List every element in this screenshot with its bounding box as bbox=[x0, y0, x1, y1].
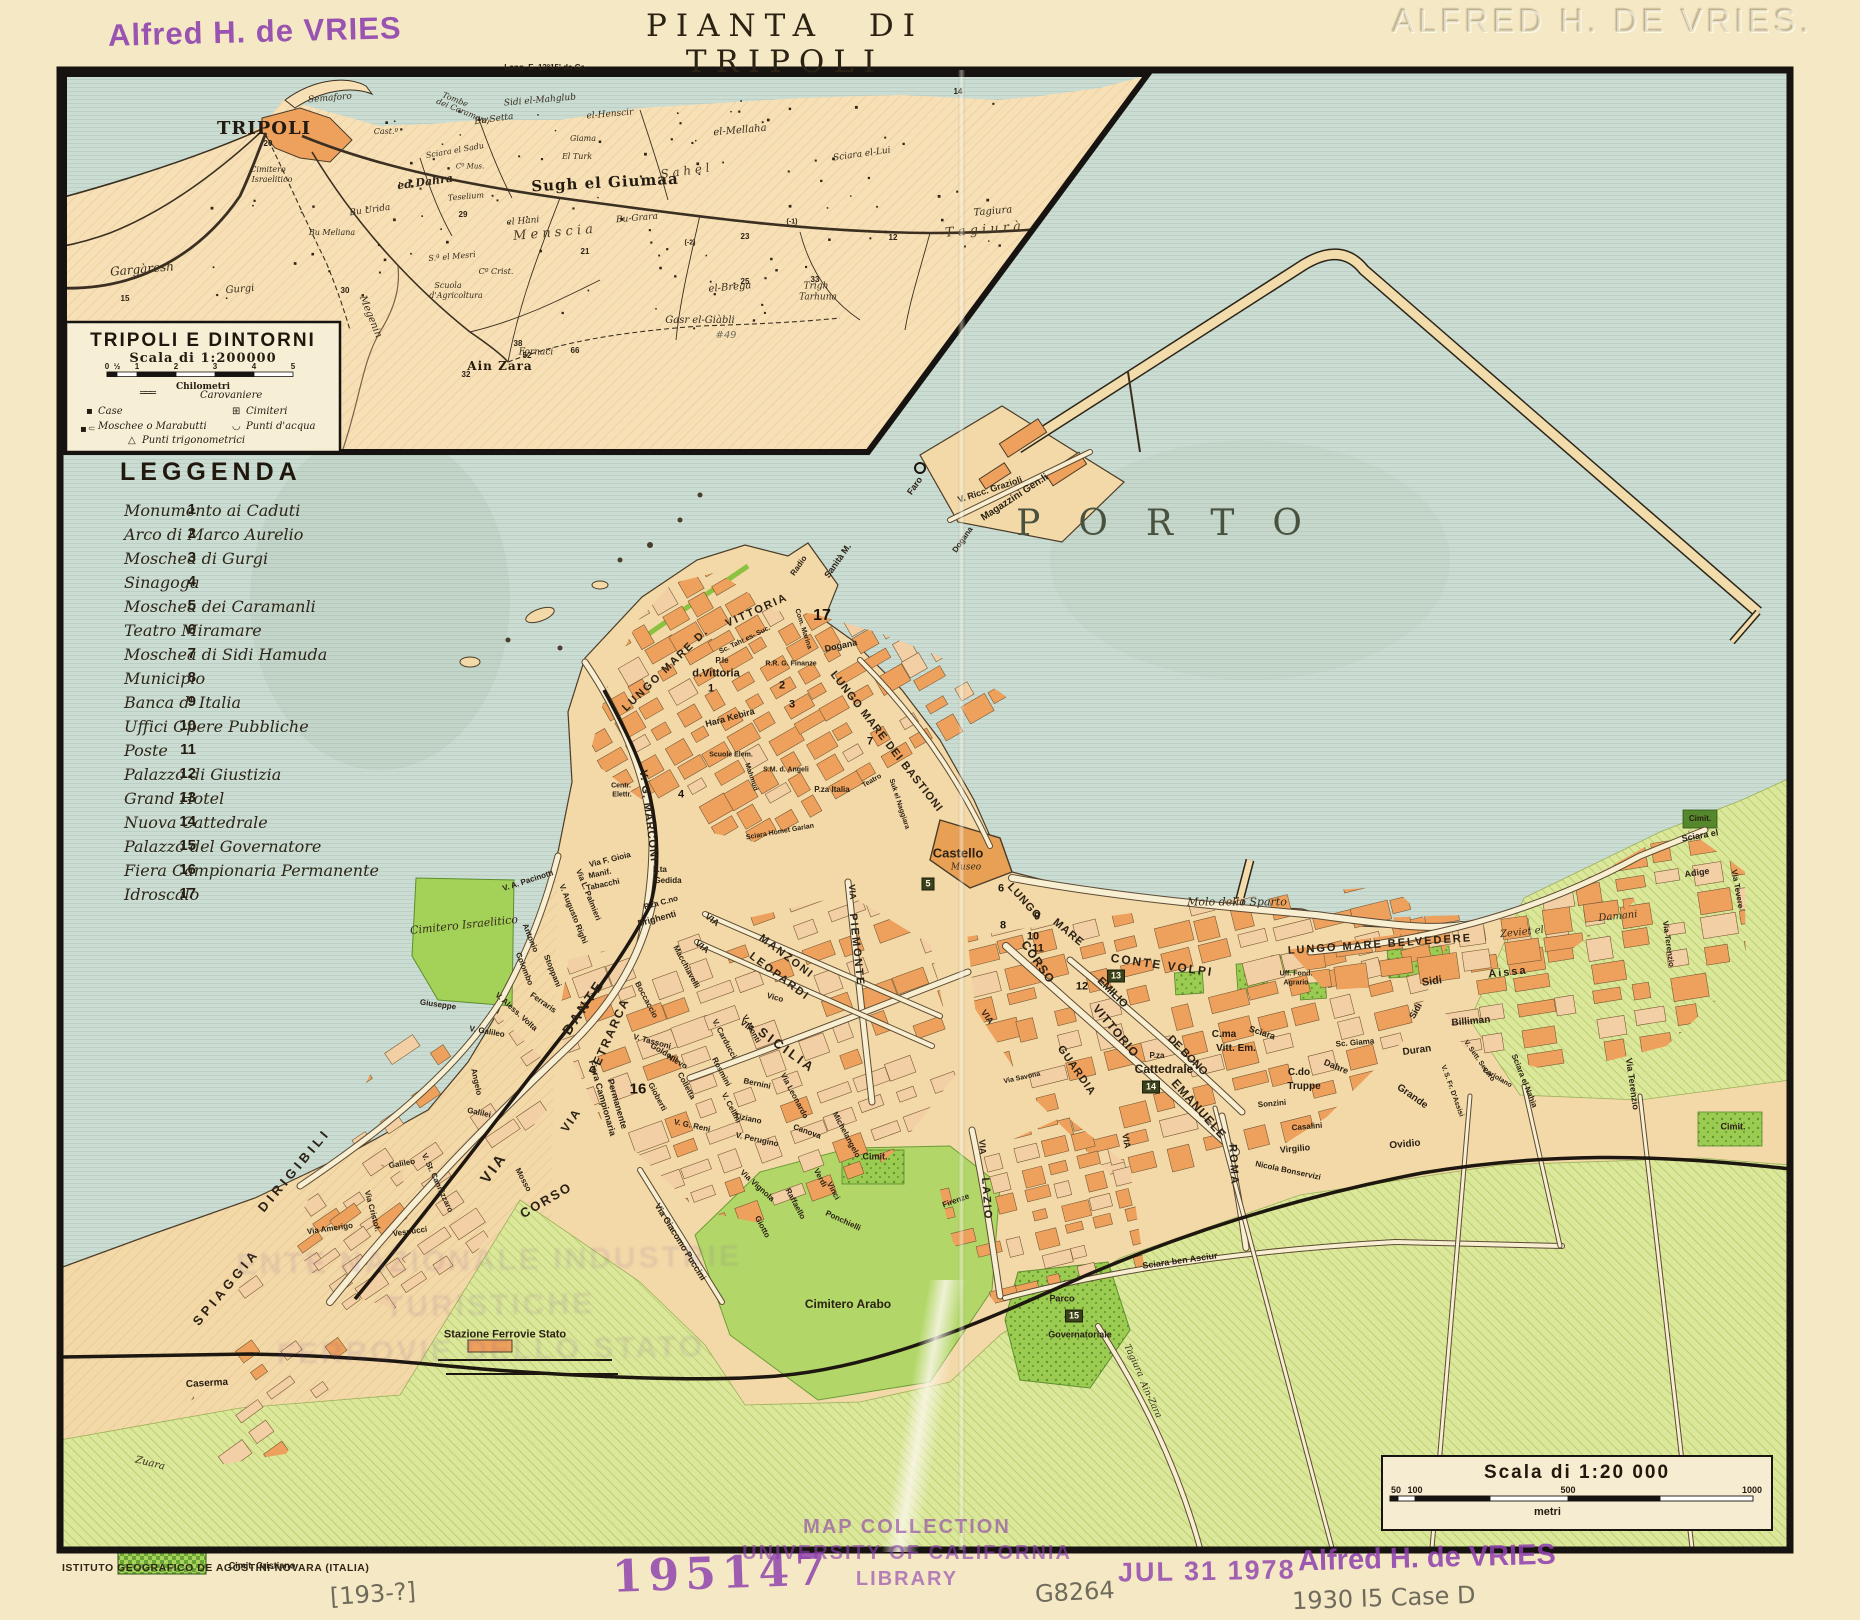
legend-item: 16Fiera Campionaria Permanente bbox=[88, 861, 418, 885]
map-label: Molo dello Sparto bbox=[1187, 897, 1287, 908]
map-label: Truppe bbox=[1287, 1082, 1320, 1092]
inset-legend-acqua: Punti d'acqua bbox=[246, 421, 316, 432]
map-label: 38 bbox=[514, 340, 523, 348]
map-label: Cº Mus. bbox=[456, 164, 484, 171]
map-label: ROMA bbox=[1226, 1144, 1239, 1186]
house-square-icon: ▪ bbox=[86, 406, 93, 417]
map-label: Cimit. bbox=[862, 1153, 887, 1162]
mosque-mark-icon: ▪⸦ bbox=[80, 421, 97, 435]
map-label: Cimitero Arabo bbox=[805, 1298, 891, 1310]
landmark-number-5: 5 bbox=[921, 878, 934, 891]
legend-item-label: Municipio bbox=[124, 669, 205, 688]
map-label: d'Agricoltura bbox=[429, 292, 482, 300]
legend-item: 4Sinagoga bbox=[88, 573, 418, 597]
map-label: P.za bbox=[1150, 1052, 1165, 1060]
paper-crease bbox=[958, 70, 965, 1550]
legend-title: LEGGENDA bbox=[120, 458, 418, 487]
map-label: S.M. d. Angeli bbox=[763, 767, 809, 774]
landmark-number-4: 4 bbox=[678, 790, 684, 801]
map-label: Parco bbox=[1049, 1295, 1074, 1304]
legend-item-label: Palazzo di Giustizia bbox=[124, 765, 281, 784]
inset-scale-tick: 0 bbox=[105, 362, 109, 371]
inset-scale-tick: 3 bbox=[213, 362, 217, 371]
map-label: Scuola bbox=[434, 282, 461, 290]
map-label: El Turk bbox=[562, 153, 592, 161]
legend-item: 17Idroscalo bbox=[88, 885, 418, 909]
map-label: (-1) bbox=[787, 219, 798, 226]
inset-legend-case: Case bbox=[98, 406, 123, 417]
map-label: 66 bbox=[571, 347, 580, 355]
map-label: C.do bbox=[1288, 1068, 1310, 1078]
map-label: Cimit. bbox=[1720, 1123, 1745, 1132]
map-label: TRIPOLI bbox=[217, 120, 311, 138]
map-label: Bu Meliana bbox=[309, 229, 355, 237]
publisher-imprint: ISTITUTO GEOGRAFICO DE AGOSTINI-NOVARA (… bbox=[62, 1562, 369, 1574]
landmark-number-6: 6 bbox=[998, 884, 1004, 895]
legend-item-label: Sinagoga bbox=[124, 573, 200, 592]
legend-item-label: Idroscalo bbox=[124, 885, 199, 904]
map-label: Tarhuna bbox=[799, 294, 837, 303]
inset-scale-tick: ½ bbox=[114, 362, 121, 371]
scale-box: Scala di 1:20 000 metri 501005001000 bbox=[1382, 1456, 1772, 1530]
legend-item: 2Arco di Marco Aurelio bbox=[88, 525, 418, 549]
landmark-number-10: 10 bbox=[1027, 932, 1039, 943]
map-label: Gasr el-Giàbli bbox=[665, 316, 734, 326]
map-label: Scuole Elem. bbox=[709, 752, 753, 759]
legend-item: 15Palazzo del Governatore bbox=[88, 837, 418, 861]
landmark-number-15: 15 bbox=[1065, 1310, 1083, 1323]
map-sheet: PIANTA DI TRIPOLI Alfred H. de VRIES ALF… bbox=[0, 0, 1860, 1620]
owner-stamp-bottom: Alfred H. de VRIES bbox=[1298, 1539, 1557, 1579]
map-label: Uff. Fond. bbox=[1280, 971, 1313, 978]
water-point-icon: ◡ bbox=[232, 421, 241, 432]
legend-item: 1Monumento ai Caduti bbox=[88, 501, 418, 525]
inset-title: TRIPOLI E DINTORNI bbox=[66, 330, 340, 352]
legend-item-label: Moschea di Sidi Hamuda bbox=[124, 645, 327, 664]
map-label: Governatoriale bbox=[1048, 1331, 1112, 1340]
scale-unit: metri bbox=[1534, 1506, 1561, 1518]
legend-item-label: Fiera Campionaria Permanente bbox=[124, 861, 379, 880]
map-label: PORTO bbox=[1016, 506, 1340, 542]
map-label: R.R. G. Finanze bbox=[765, 661, 816, 668]
pencil-date-note: [193-?] bbox=[329, 1577, 417, 1611]
inset-legend-cimiteri: Cimiteri bbox=[246, 406, 287, 417]
legend-item: 8Municipio bbox=[88, 669, 418, 693]
legend-item-label: Poste bbox=[124, 741, 168, 760]
map-label: Giama bbox=[570, 135, 596, 143]
map-label: P.ta bbox=[653, 866, 667, 874]
scale-tick: 1000 bbox=[1742, 1485, 1762, 1495]
triangle-icon: △ bbox=[128, 435, 136, 446]
legend-panel: LEGGENDA 1Monumento ai Caduti2Arco di Ma… bbox=[88, 458, 418, 909]
map-label: 32 bbox=[462, 371, 471, 379]
map-label: C.ma bbox=[1212, 1030, 1236, 1040]
library-stamp: MAP COLLECTION UNIVERSITY OF CALIFORNIA … bbox=[742, 1514, 1072, 1592]
map-label: P.za Italia bbox=[814, 786, 849, 794]
legend-item-label: Palazzo del Governatore bbox=[124, 837, 321, 856]
map-label: Centr. bbox=[611, 783, 631, 790]
legend-item-label: Grand Hotel bbox=[124, 789, 224, 808]
landmark-number-14: 14 bbox=[1142, 1081, 1160, 1094]
scale-tick: 100 bbox=[1407, 1485, 1422, 1495]
landmark-number-13: 13 bbox=[1107, 970, 1125, 983]
scale-tick: 50 bbox=[1391, 1485, 1401, 1495]
legend-item-label: Moschea dei Caramanli bbox=[124, 597, 316, 616]
map-label: Gedida bbox=[654, 877, 681, 885]
map-label: Long. E. 13°15' da Gr. bbox=[504, 64, 586, 72]
landmark-number-12: 12 bbox=[1076, 982, 1088, 993]
map-label: Agrario bbox=[1284, 980, 1309, 987]
map-label: 20 bbox=[264, 140, 273, 148]
map-label: Museo bbox=[951, 864, 981, 873]
map-label: 15 bbox=[121, 295, 130, 303]
legend-item-label: Uffici Opere Pubbliche bbox=[124, 717, 309, 736]
legend-item-label: Moschea di Gurgi bbox=[124, 549, 268, 568]
map-label: Cast.º bbox=[374, 128, 399, 136]
legend-item-label: Nuova Cattedrale bbox=[124, 813, 268, 832]
legend-item: 12Palazzo di Giustizia bbox=[88, 765, 418, 789]
legend-item-label: Monumento ai Caduti bbox=[124, 501, 300, 520]
map-label: #49 bbox=[715, 331, 736, 341]
legend-item: 5Moschea dei Caramanli bbox=[88, 597, 418, 621]
map-label: Elettr. bbox=[612, 792, 631, 799]
scale-title: Scala di 1:20 000 bbox=[1382, 1462, 1772, 1484]
inset-scale-tick: 1 bbox=[135, 362, 139, 371]
map-label: (-2) bbox=[685, 240, 696, 247]
landmark-number-11: 11 bbox=[1032, 944, 1044, 955]
legend-item: 13Grand Hotel bbox=[88, 789, 418, 813]
map-label: Cº Crist. bbox=[479, 268, 514, 276]
map-label: Cimitero bbox=[250, 166, 285, 174]
map-label: 52 bbox=[523, 352, 532, 360]
legend-item: 6Teatro Miramare bbox=[88, 621, 418, 645]
map-label: 21 bbox=[581, 248, 590, 256]
map-label: Ain Zara bbox=[467, 360, 532, 372]
landmark-number-8: 8 bbox=[1000, 921, 1006, 932]
map-label: VIA bbox=[847, 884, 858, 900]
legend-item: 7Moschea di Sidi Hamuda bbox=[88, 645, 418, 669]
map-label: Cimit. bbox=[1689, 815, 1711, 823]
inset-legend-carovaniere: Carovaniere bbox=[200, 390, 262, 401]
legend-item: 9Banca d' Italia bbox=[88, 693, 418, 717]
landmark-number-7: 7 bbox=[867, 737, 873, 748]
landmark-number-17: 17 bbox=[813, 608, 831, 624]
map-label: Cattedrale bbox=[1135, 1063, 1194, 1075]
road-lines-icon: ═══ bbox=[140, 388, 155, 399]
legend-item-label: Teatro Miramare bbox=[124, 621, 262, 640]
inset-scale-tick: 2 bbox=[174, 362, 178, 371]
verso-showthrough-stamp: ENTE NAZIONALE INDUSTRIE TURISTICHE FERR… bbox=[229, 1233, 751, 1377]
legend-item: 10Uffici Opere Pubbliche bbox=[88, 717, 418, 741]
map-label: VIA bbox=[1120, 1133, 1131, 1149]
legend-item-label: Banca d' Italia bbox=[124, 693, 241, 712]
landmark-number-2: 2 bbox=[779, 681, 785, 692]
scale-tick: 500 bbox=[1560, 1485, 1575, 1495]
map-label: d.Vittoria bbox=[692, 669, 739, 680]
owner-stamp-embossed: ALFRED H. DE VRIES. bbox=[1392, 2, 1813, 40]
legend-item: 3Moschea di Gurgi bbox=[88, 549, 418, 573]
legend-item-label: Arco di Marco Aurelio bbox=[124, 525, 303, 544]
legend-item-number: 11 bbox=[166, 741, 196, 758]
inset-scale-tick: 4 bbox=[252, 362, 256, 371]
legend-items: 1Monumento ai Caduti2Arco di Marco Aurel… bbox=[88, 501, 418, 909]
inset-info-overlay: TRIPOLI E DINTORNI Scala di 1:200000 Chi… bbox=[66, 322, 340, 452]
map-label: 29 bbox=[459, 211, 468, 219]
map-label: Vitt. Em. bbox=[1216, 1044, 1256, 1054]
map-label: VIA bbox=[977, 1139, 987, 1155]
map-label: Israelitico bbox=[252, 176, 293, 184]
landmark-number-1: 1 bbox=[708, 684, 714, 695]
map-label: 12 bbox=[889, 234, 898, 242]
cemetery-grid-icon: ⊞ bbox=[232, 406, 240, 417]
map-label: P.le bbox=[715, 657, 728, 665]
date-stamp: JUL 31 1978 bbox=[1118, 1554, 1296, 1588]
inset-legend-trig: Punti trigonometrici bbox=[142, 435, 245, 446]
map-label: 25 bbox=[741, 278, 750, 286]
map-label: 30 bbox=[341, 287, 350, 295]
pencil-call-number: G8264 bbox=[1034, 1576, 1115, 1608]
legend-item: 11Poste bbox=[88, 741, 418, 765]
map-label: 33 bbox=[811, 276, 820, 284]
landmark-number-9: 9 bbox=[1034, 912, 1040, 923]
owner-stamp-top-left: Alfred H. de VRIES bbox=[108, 10, 402, 54]
landmark-number-16: 16 bbox=[630, 1082, 647, 1097]
legend-item: 14Nuova Cattedrale bbox=[88, 813, 418, 837]
inset-legend-moschee: Moschee o Marabutti bbox=[98, 421, 207, 432]
map-label: 23 bbox=[741, 233, 750, 241]
inset-scale-tick: 5 bbox=[291, 362, 295, 371]
landmark-number-3: 3 bbox=[789, 700, 795, 711]
map-title: PIANTA DI TRIPOLI bbox=[540, 8, 1030, 80]
map-label: LAZIO bbox=[979, 1177, 993, 1221]
